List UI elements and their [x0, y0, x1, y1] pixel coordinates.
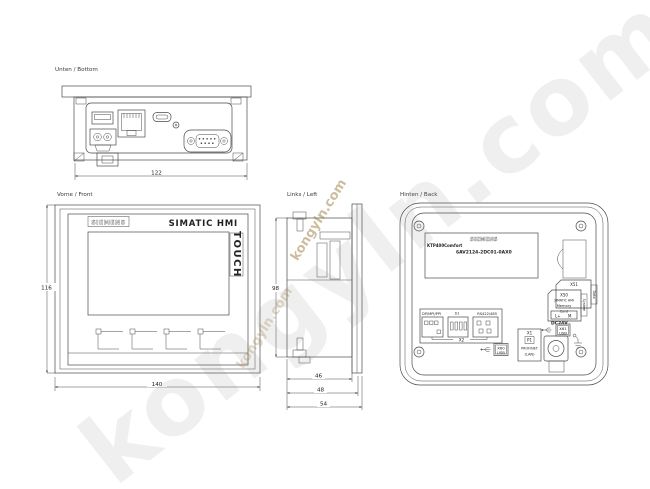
- view-bottom: Unten / Bottom: [55, 67, 251, 180]
- x2-label: X2: [459, 338, 465, 343]
- corner-screw-bottom-left: [414, 347, 424, 357]
- siemens-logo: SIEMENS: [91, 220, 125, 227]
- connector-dp-mpi-ppi: [422, 317, 443, 337]
- p1-label: P1: [527, 338, 532, 343]
- svg-text:Card: Card: [560, 310, 568, 314]
- dp-mpi-ppi-label: DP/MPI/PPI: [422, 312, 441, 316]
- corner-screw-top-right: [576, 221, 586, 231]
- function-key-1: [96, 329, 123, 349]
- view-front-label: Vorne / Front: [57, 192, 93, 198]
- connector-rs422-485: [473, 317, 498, 337]
- dim-54: 54: [320, 402, 328, 408]
- function-key-2: [130, 329, 157, 349]
- svg-text:Memory: Memory: [557, 304, 572, 308]
- reset-hole: [173, 122, 179, 128]
- drawing-canvas: Unten / Bottom: [0, 0, 650, 489]
- bottom-width-dimension: 122: [75, 163, 247, 180]
- usb-icon: [543, 328, 552, 332]
- usb-x61: X61 USB: [542, 324, 570, 336]
- usb-x60: X60 USB: [481, 344, 508, 356]
- lan-label: (LAN): [524, 353, 535, 357]
- watermark-large: kongyln.com: [61, 0, 650, 489]
- view-bottom-label: Unten / Bottom: [55, 67, 98, 73]
- usb-x61-type: USB: [559, 331, 567, 336]
- power-terminal-2pin: [90, 129, 116, 151]
- dip-switch-s1: [448, 317, 468, 337]
- view-left-label: Links / Left: [287, 192, 318, 198]
- card-slot-door: [558, 240, 587, 278]
- nameplate-brand: SIEMENS: [470, 237, 498, 243]
- touch-display: [88, 232, 229, 315]
- touch-label: TOUCH: [231, 231, 242, 278]
- usb-a-port: [92, 112, 113, 124]
- power-connector: [544, 336, 568, 372]
- ethernet-rj45-port: [118, 110, 145, 137]
- usb-icon: [482, 348, 491, 352]
- watermark-layer: kongyln.com kongyln.com kongyln.com: [61, 0, 650, 489]
- power-plug-foot: [97, 153, 118, 166]
- bottom-housing: [74, 97, 247, 160]
- terminal-m: M: [568, 314, 572, 319]
- x1-label: X1: [527, 331, 533, 336]
- dim-116: 116: [41, 286, 52, 292]
- dimensional-drawing-page: Unten / Bottom: [0, 0, 650, 489]
- profinet-x1: X1 P1 PROFINET (LAN): [518, 329, 541, 361]
- usb-x60-type: USB: [497, 350, 505, 355]
- profinet-label: PROFINET: [521, 347, 539, 351]
- nameplate-order-number: 6AV2124-2DC01-0AX0: [456, 250, 512, 256]
- memory-card-data-tab: Data: [592, 290, 596, 298]
- bottom-port-panel: [86, 103, 232, 153]
- rs422-485-label: RS422/485: [477, 312, 497, 316]
- db9-serial-port: [184, 130, 231, 152]
- memory-card-x51-label: X51: [570, 282, 578, 287]
- dim-122: 122: [151, 171, 162, 177]
- front-height-dimension: 116: [38, 205, 56, 373]
- mini-usb-port: [153, 113, 171, 122]
- interface-x2-block: DP/MPI/PPI S1 RS422/485: [420, 309, 502, 343]
- memory-card-system-tab: System: [582, 299, 586, 312]
- dim-46: 46: [315, 374, 323, 380]
- bottom-front-bezel: [62, 86, 251, 97]
- simatic-hmi-label: SIMATIC HMI: [169, 219, 238, 229]
- memory-card-x50-label: X50: [560, 293, 568, 298]
- corner-screw-bottom-right: [576, 347, 586, 357]
- dim-48: 48: [317, 388, 325, 394]
- s1-label: S1: [455, 311, 460, 316]
- svg-text:SIMATIC HMI: SIMATIC HMI: [554, 299, 574, 303]
- terminal-l-plus: L+: [555, 314, 561, 319]
- ground-icon: [573, 334, 582, 348]
